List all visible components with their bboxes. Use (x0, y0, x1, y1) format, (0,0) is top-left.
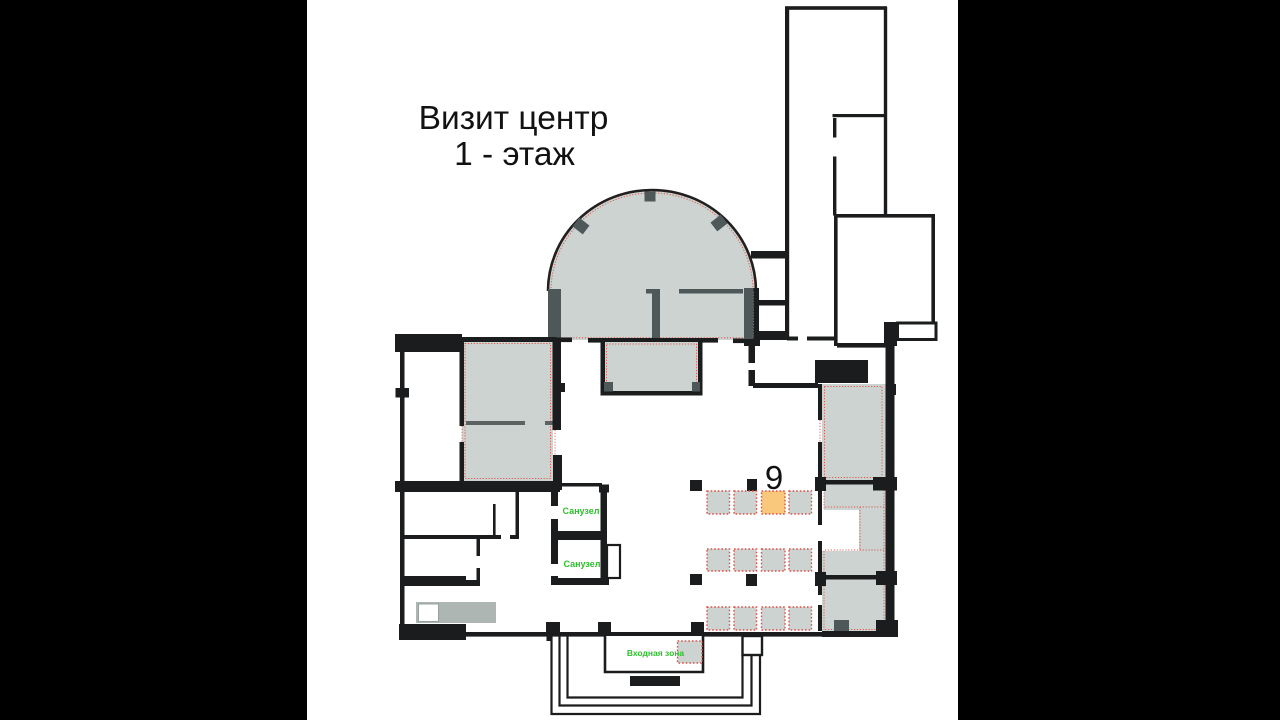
svg-text:Входная зона: Входная зона (627, 648, 685, 658)
svg-text:Санузел: Санузел (563, 559, 600, 569)
svg-text:1 - этаж: 1 - этаж (454, 136, 575, 173)
svg-text:Санузел: Санузел (562, 506, 599, 516)
svg-text:Визит центр: Визит центр (419, 100, 609, 137)
